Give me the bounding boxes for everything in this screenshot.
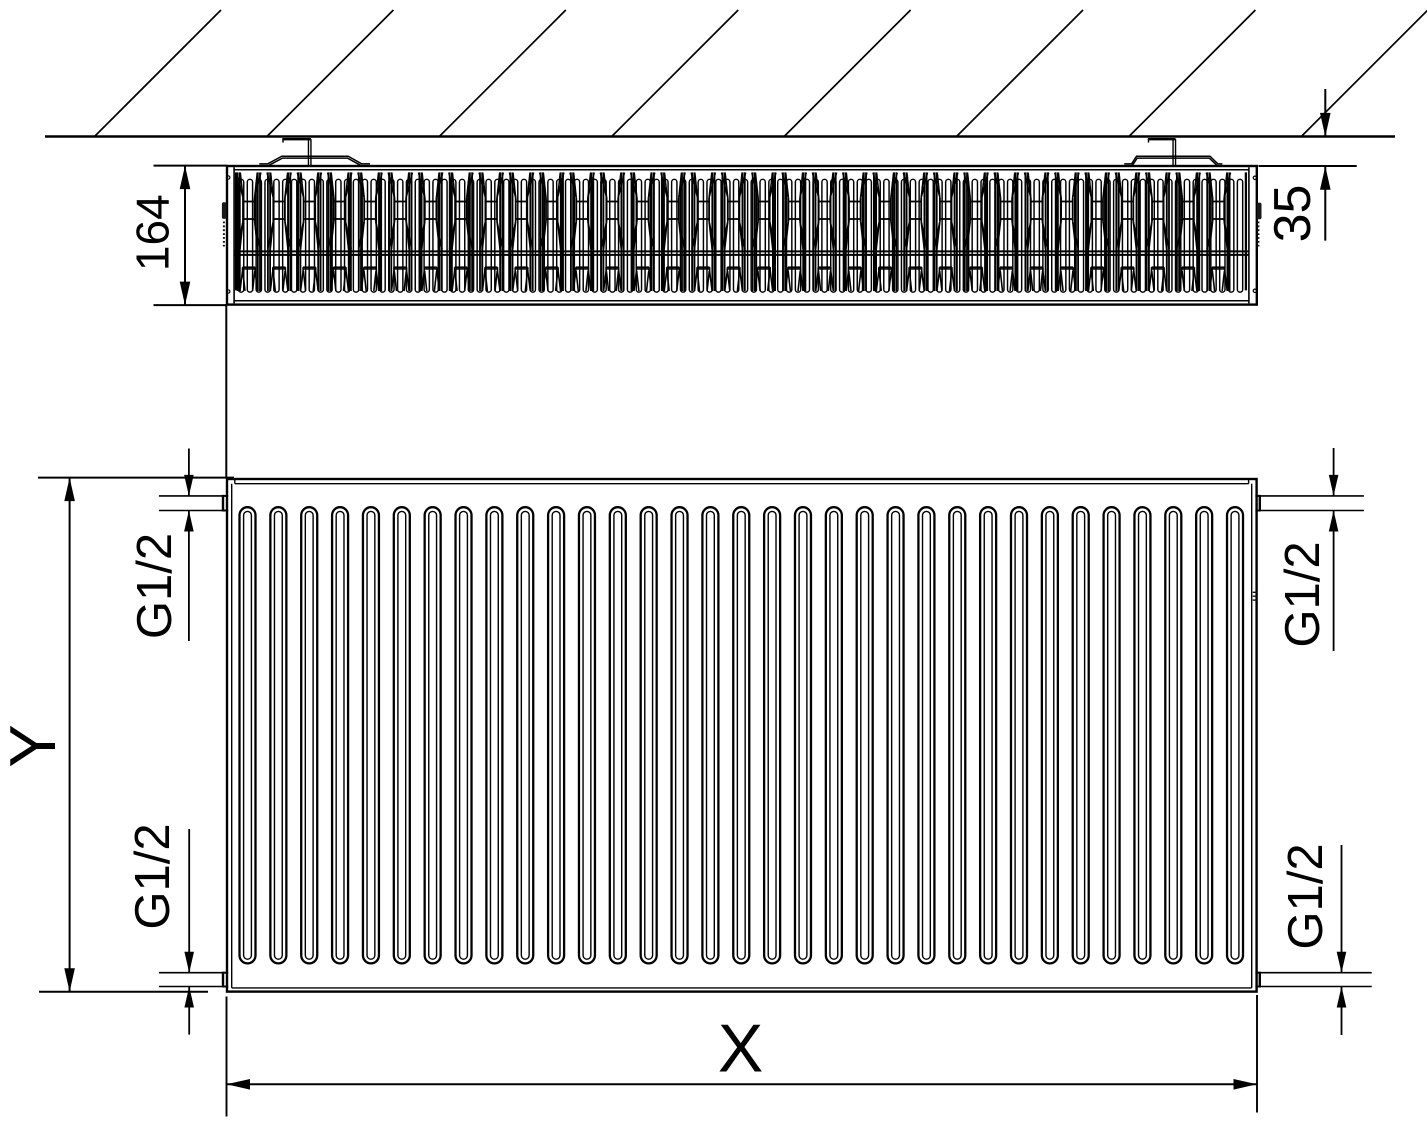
svg-text:G1/2: G1/2 [126, 823, 180, 929]
svg-text:G1/2: G1/2 [1279, 843, 1333, 949]
svg-text:Y: Y [0, 724, 69, 767]
svg-text:G1/2: G1/2 [128, 533, 182, 639]
svg-text:X: X [718, 1011, 763, 1087]
svg-text:164: 164 [127, 194, 179, 271]
svg-text:35: 35 [1264, 185, 1322, 243]
svg-text:G1/2: G1/2 [1276, 541, 1330, 647]
